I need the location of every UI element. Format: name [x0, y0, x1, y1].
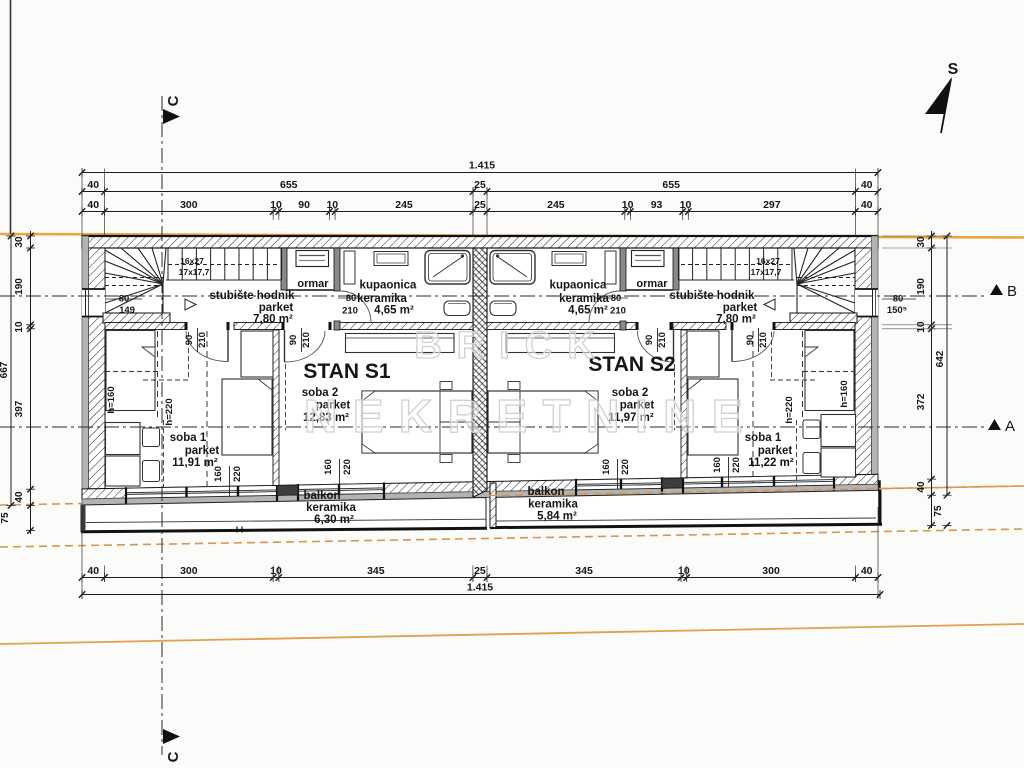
svg-text:keramika: keramika	[357, 293, 407, 305]
svg-text:balkon: balkon	[527, 486, 564, 498]
svg-text:17x17,7: 17x17,7	[179, 267, 210, 277]
svg-text:4,65 m²: 4,65 m²	[374, 305, 414, 317]
svg-text:150⁵: 150⁵	[887, 305, 907, 316]
svg-text:A: A	[1005, 418, 1015, 435]
svg-text:190: 190	[14, 278, 25, 295]
svg-text:210: 210	[657, 332, 668, 348]
svg-text:220: 220	[731, 457, 742, 473]
svg-text:keramika: keramika	[559, 293, 609, 305]
svg-text:10: 10	[326, 199, 338, 211]
svg-text:90: 90	[288, 335, 299, 346]
svg-text:30: 30	[14, 236, 25, 248]
svg-text:345: 345	[367, 565, 385, 577]
svg-text:210: 210	[342, 306, 358, 317]
svg-text:kupaonica: kupaonica	[360, 280, 417, 292]
svg-text:7,80 m²: 7,80 m²	[716, 314, 756, 326]
svg-text:25: 25	[474, 179, 486, 191]
svg-text:10: 10	[14, 321, 25, 333]
svg-text:190: 190	[916, 278, 927, 295]
svg-text:10: 10	[680, 199, 692, 211]
svg-text:40: 40	[87, 565, 99, 577]
svg-text:93: 93	[651, 199, 663, 211]
svg-text:40: 40	[916, 481, 927, 493]
svg-text:BRICK: BRICK	[414, 325, 609, 367]
svg-text:parket: parket	[185, 445, 220, 457]
svg-text:245: 245	[395, 199, 413, 211]
svg-text:372: 372	[916, 393, 927, 410]
svg-text:16x27: 16x27	[756, 256, 780, 266]
svg-text:40: 40	[87, 179, 99, 191]
svg-text:40: 40	[861, 565, 873, 577]
svg-text:parket: parket	[259, 302, 294, 314]
svg-text:6,30 m²: 6,30 m²	[314, 514, 354, 526]
svg-text:10: 10	[270, 565, 282, 577]
svg-text:160: 160	[601, 459, 612, 475]
svg-text:kupaonica: kupaonica	[550, 280, 607, 292]
svg-text:210: 210	[758, 332, 769, 348]
svg-text:80: 80	[346, 293, 357, 304]
svg-text:40: 40	[87, 199, 99, 211]
svg-text:h=220: h=220	[164, 398, 175, 425]
svg-text:NEKRETNINE: NEKRETNINE	[304, 390, 758, 442]
svg-text:B: B	[1007, 283, 1017, 300]
svg-text:160: 160	[213, 466, 224, 482]
svg-text:STAN S1: STAN S1	[303, 360, 390, 383]
svg-text:210: 210	[301, 332, 312, 348]
svg-text:300: 300	[180, 199, 198, 211]
svg-text:160: 160	[712, 457, 723, 473]
svg-text:16x27: 16x27	[180, 256, 204, 266]
svg-text:keramika: keramika	[306, 502, 356, 514]
svg-text:11,91 m²: 11,91 m²	[172, 457, 218, 469]
svg-text:90: 90	[298, 199, 310, 211]
svg-text:75: 75	[0, 512, 11, 524]
svg-text:h=160: h=160	[106, 386, 117, 413]
svg-text:90: 90	[745, 335, 756, 346]
svg-text:C: C	[165, 95, 182, 106]
svg-text:parket: parket	[758, 445, 793, 457]
svg-text:40: 40	[861, 179, 873, 191]
svg-text:C: C	[165, 751, 182, 762]
svg-text:10: 10	[622, 199, 634, 211]
svg-text:220: 220	[620, 459, 631, 475]
svg-text:300: 300	[762, 565, 780, 577]
svg-text:210: 210	[610, 306, 626, 317]
svg-text:10: 10	[678, 565, 690, 577]
svg-text:642: 642	[935, 350, 946, 367]
svg-text:345: 345	[575, 565, 593, 577]
svg-text:S: S	[948, 61, 959, 78]
svg-text:7,80 m²: 7,80 m²	[253, 314, 293, 326]
svg-text:keramika: keramika	[528, 499, 578, 511]
svg-text:stubište hodnik: stubište hodnik	[670, 290, 756, 302]
svg-text:40: 40	[14, 491, 25, 503]
svg-text:5,84 m²: 5,84 m²	[537, 511, 577, 523]
svg-text:h=220: h=220	[784, 396, 795, 423]
svg-text:90: 90	[644, 335, 655, 346]
svg-text:210: 210	[197, 332, 208, 348]
svg-text:245: 245	[547, 199, 565, 211]
svg-text:25: 25	[474, 565, 486, 577]
svg-text:667: 667	[0, 361, 10, 378]
svg-text:75: 75	[933, 505, 944, 517]
svg-text:ormar: ormar	[636, 278, 668, 290]
svg-text:balkon: balkon	[303, 490, 340, 502]
svg-text:1.415: 1.415	[467, 582, 493, 594]
svg-text:4,65 m²: 4,65 m²	[568, 305, 608, 317]
svg-text:90: 90	[184, 335, 195, 346]
svg-text:160: 160	[323, 459, 334, 475]
svg-text:655: 655	[662, 179, 680, 191]
svg-text:stubište hodnik: stubište hodnik	[210, 290, 296, 302]
svg-text:1.415: 1.415	[469, 160, 495, 172]
svg-text:soba 1: soba 1	[170, 432, 207, 444]
svg-text:30: 30	[916, 236, 927, 248]
svg-text:300: 300	[180, 565, 198, 577]
svg-text:h=160: h=160	[839, 380, 850, 407]
svg-text:220: 220	[342, 459, 353, 475]
svg-text:11,22 m²: 11,22 m²	[748, 457, 794, 469]
svg-text:parket: parket	[723, 302, 758, 314]
svg-text:297: 297	[763, 199, 781, 211]
svg-text:17x17,7: 17x17,7	[751, 267, 782, 277]
svg-text:10: 10	[270, 199, 282, 211]
svg-text:149: 149	[119, 305, 135, 316]
svg-text:220: 220	[232, 466, 243, 482]
svg-text:10: 10	[916, 321, 927, 333]
svg-text:397: 397	[14, 400, 25, 417]
svg-text:80: 80	[611, 293, 622, 304]
svg-text:25: 25	[474, 199, 486, 211]
svg-text:655: 655	[280, 179, 298, 191]
svg-text:ormar: ormar	[297, 278, 329, 290]
svg-text:40: 40	[861, 199, 873, 211]
